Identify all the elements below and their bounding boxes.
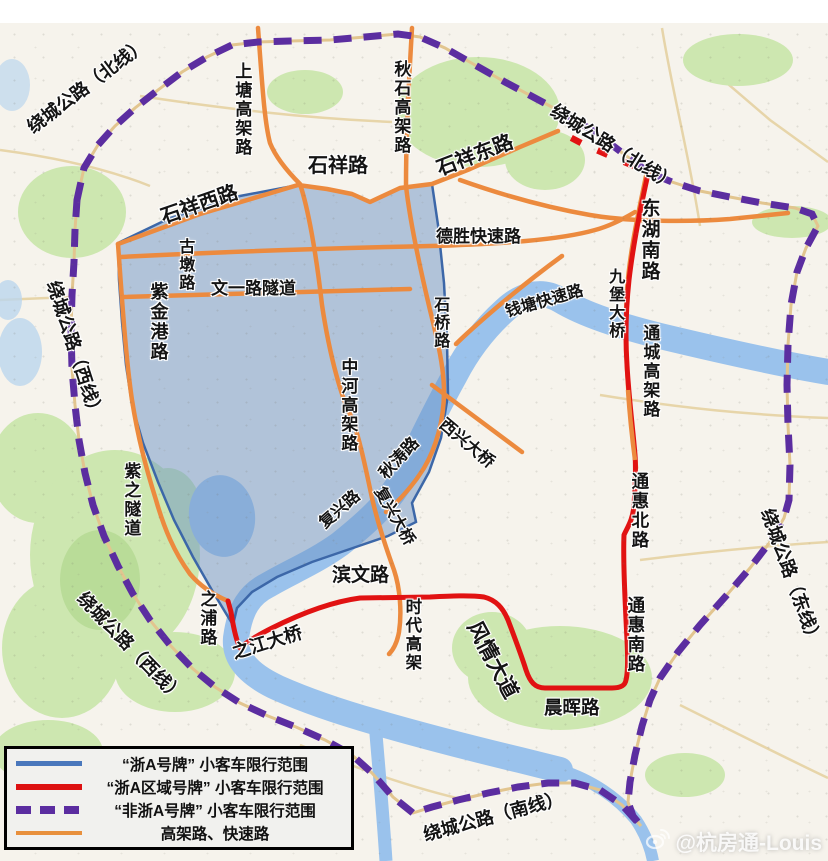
legend-box: “浙A号牌” 小客车限行范围 “浙A区域号牌” 小客车限行范围 “非浙A号牌” … <box>4 746 354 850</box>
legend-row-elevated-roads: 高架路、快速路 <box>13 821 345 844</box>
legend-row-non-zhea-plate: “非浙A号牌” 小客车限行范围 <box>13 798 345 821</box>
road-label-shiqiao: 石桥路 <box>431 296 448 350</box>
top-margin <box>0 0 828 23</box>
road-label-jiubao-bridge: 九堡大桥 <box>606 268 623 340</box>
legend-label: “浙A区域号牌” 小客车限行范围 <box>85 776 345 798</box>
legend-label: 高架路、快速路 <box>85 822 345 844</box>
road-label-qiushi: 秋石高架路 <box>391 60 409 155</box>
weibo-icon <box>645 828 671 856</box>
road-label-desheng: 德胜快速路 <box>436 228 521 246</box>
road-label-chenhui: 晨晖路 <box>544 698 600 718</box>
legend-label: “浙A号牌” 小客车限行范围 <box>85 753 345 775</box>
road-label-binwen: 滨文路 <box>332 566 389 587</box>
road-label-tonghui-south: 通惠南路 <box>626 596 645 674</box>
road-label-gudun: 古墩路 <box>176 238 193 292</box>
road-label-zijingang: 紫金港路 <box>148 282 167 362</box>
watermark-handle: @杭房通-Louis <box>676 827 822 857</box>
road-label-zizhi-tunnel: 紫之隧道 <box>121 462 139 538</box>
road-label-shangtang: 上塘高架路 <box>232 62 250 157</box>
road-label-shidai: 时代高架 <box>402 598 420 672</box>
legend-row-zhea-plate: “浙A号牌” 小客车限行范围 <box>13 752 345 775</box>
orange-solid-line-swatch <box>13 831 85 835</box>
red-solid-line-swatch <box>13 784 85 790</box>
legend-row-zhea-regional-plate: “浙A区域号牌” 小客车限行范围 <box>13 775 345 798</box>
map-canvas <box>0 0 828 861</box>
purple-dashed-line-swatch <box>13 806 85 814</box>
road-label-zhipu: 之浦路 <box>197 590 215 647</box>
road-label-tonghui-north: 通惠北路 <box>630 472 649 550</box>
blue-solid-line-swatch <box>13 761 85 766</box>
road-label-tongcheng: 通城高架路 <box>640 324 658 419</box>
map-screenshot: 绕城公路（北线） 绕城公路（北线） 绕城公路（西线） 绕城公路（西线） 绕城公路… <box>0 0 828 861</box>
road-label-zhonghe: 中河高架路 <box>338 358 356 453</box>
legend-label: “非浙A号牌” 小客车限行范围 <box>85 799 345 821</box>
watermark: @杭房通-Louis <box>645 827 822 857</box>
road-label-wenyi-tunnel: 文一路隧道 <box>211 280 296 298</box>
road-label-donghu-south: 东湖南路 <box>638 198 659 282</box>
road-label-shixiang: 石祥路 <box>308 156 368 178</box>
